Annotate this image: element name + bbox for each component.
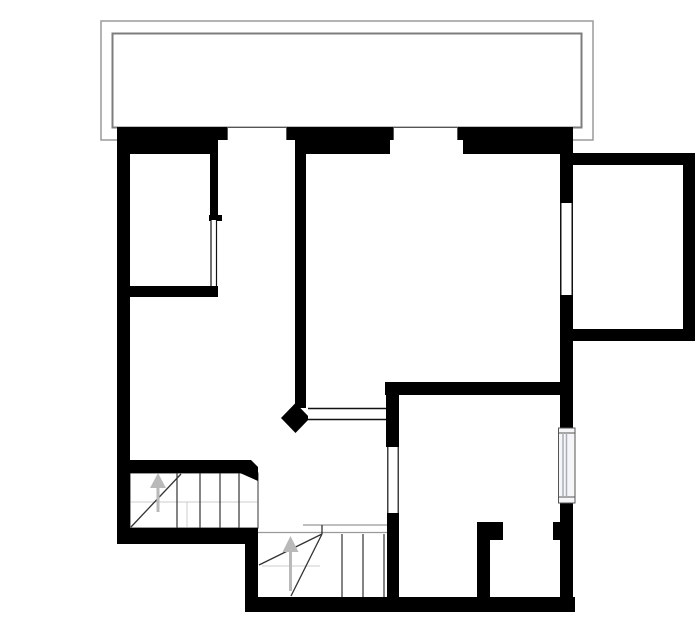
lower-room-window [559, 428, 576, 503]
bedroom-door-opening [211, 220, 218, 286]
bedroom-bottom-wall [117, 286, 218, 297]
right-exterior-wall-middle [560, 295, 573, 428]
floor-plan-canvas [0, 0, 700, 644]
hall-bottom-exterior-wall [117, 528, 258, 544]
right-wall-window-opening-gap [560, 203, 573, 295]
upper-stair-arrow-stem [157, 486, 160, 512]
top-window-left-outer [228, 128, 287, 141]
pass-through-opening-gap [308, 410, 386, 420]
floor-plan-drawing [0, 0, 700, 644]
annex-bottom-wall [573, 329, 695, 341]
top-window-right-inner [390, 140, 463, 154]
pass-through-opening [308, 409, 386, 420]
closet-door-stub-left [490, 522, 503, 540]
lower-room-door-jamb-lower [387, 512, 399, 603]
bedroom-partition-wall [210, 152, 218, 218]
top-window-left-inner [218, 140, 295, 154]
top-window-right-outer [394, 128, 458, 141]
central-partition-wall [295, 138, 306, 408]
annex-top-wall [573, 153, 695, 165]
right-exterior-wall-lower [560, 503, 573, 612]
lower-stair-arrow-stem [289, 551, 292, 591]
lower-room-door-opening-gap [387, 447, 399, 513]
right-wall-window-opening [560, 203, 573, 295]
bottom-exterior-wall [245, 597, 575, 612]
lower-room-door-opening [387, 447, 399, 513]
right-exterior-wall-upper [560, 127, 573, 203]
annex-right-wall [683, 153, 695, 341]
plan-background [0, 0, 700, 644]
left-exterior-wall [117, 127, 130, 542]
top-exterior-wall [117, 127, 573, 154]
stair-top-wall [117, 460, 240, 473]
lower-room-door-jamb-upper [386, 382, 399, 447]
closet-partition-wall [477, 522, 490, 602]
lower-room-top-wall [385, 382, 573, 395]
closet-door-stub-right [553, 522, 561, 540]
